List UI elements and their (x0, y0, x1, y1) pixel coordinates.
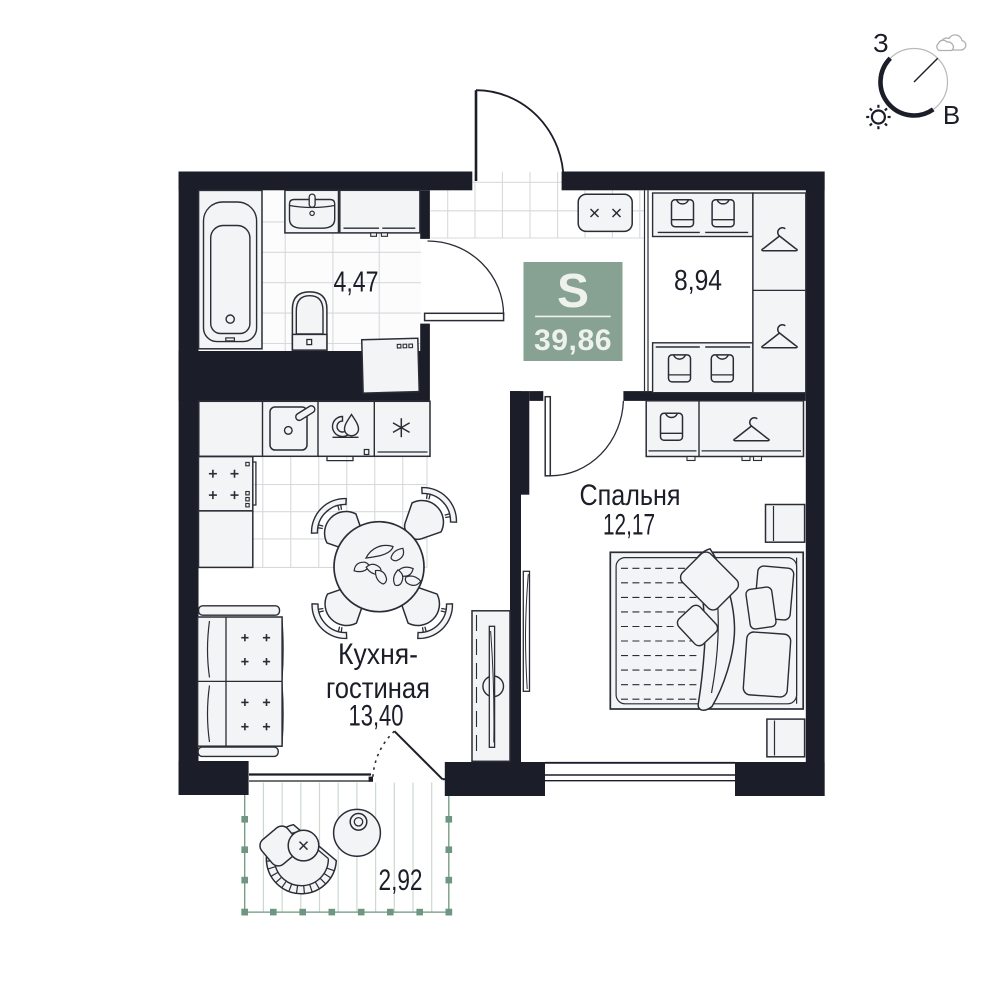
svg-text:2,92: 2,92 (379, 864, 423, 897)
svg-text:Кухня-: Кухня- (338, 638, 418, 671)
svg-text:Спальня: Спальня (580, 479, 681, 512)
svg-text:В: В (943, 100, 960, 130)
svg-text:S: S (557, 265, 589, 318)
svg-text:12,17: 12,17 (603, 509, 655, 542)
svg-text:13,40: 13,40 (349, 700, 404, 733)
svg-text:8,94: 8,94 (674, 265, 722, 297)
svg-text:З: З (873, 28, 889, 58)
svg-text:39,86: 39,86 (534, 324, 612, 357)
svg-text:4,47: 4,47 (334, 267, 379, 299)
